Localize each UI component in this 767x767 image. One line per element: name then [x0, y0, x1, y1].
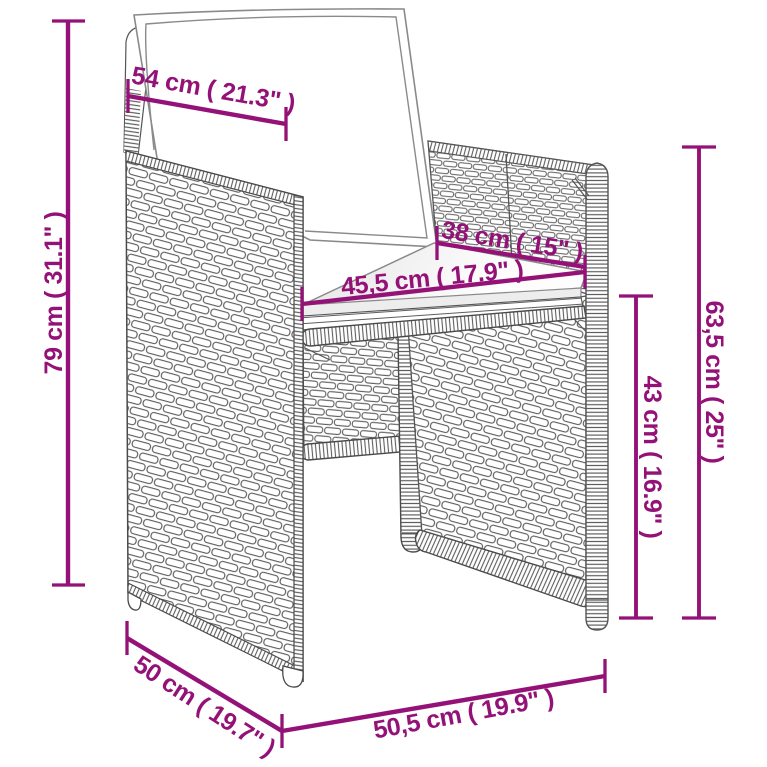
svg-text:43 cm ( 16.9" ): 43 cm ( 16.9" ): [638, 376, 666, 539]
svg-text:63,5 cm ( 25" ): 63,5 cm ( 25" ): [700, 301, 728, 464]
svg-text:79 cm ( 31.1" ): 79 cm ( 31.1" ): [40, 211, 68, 374]
